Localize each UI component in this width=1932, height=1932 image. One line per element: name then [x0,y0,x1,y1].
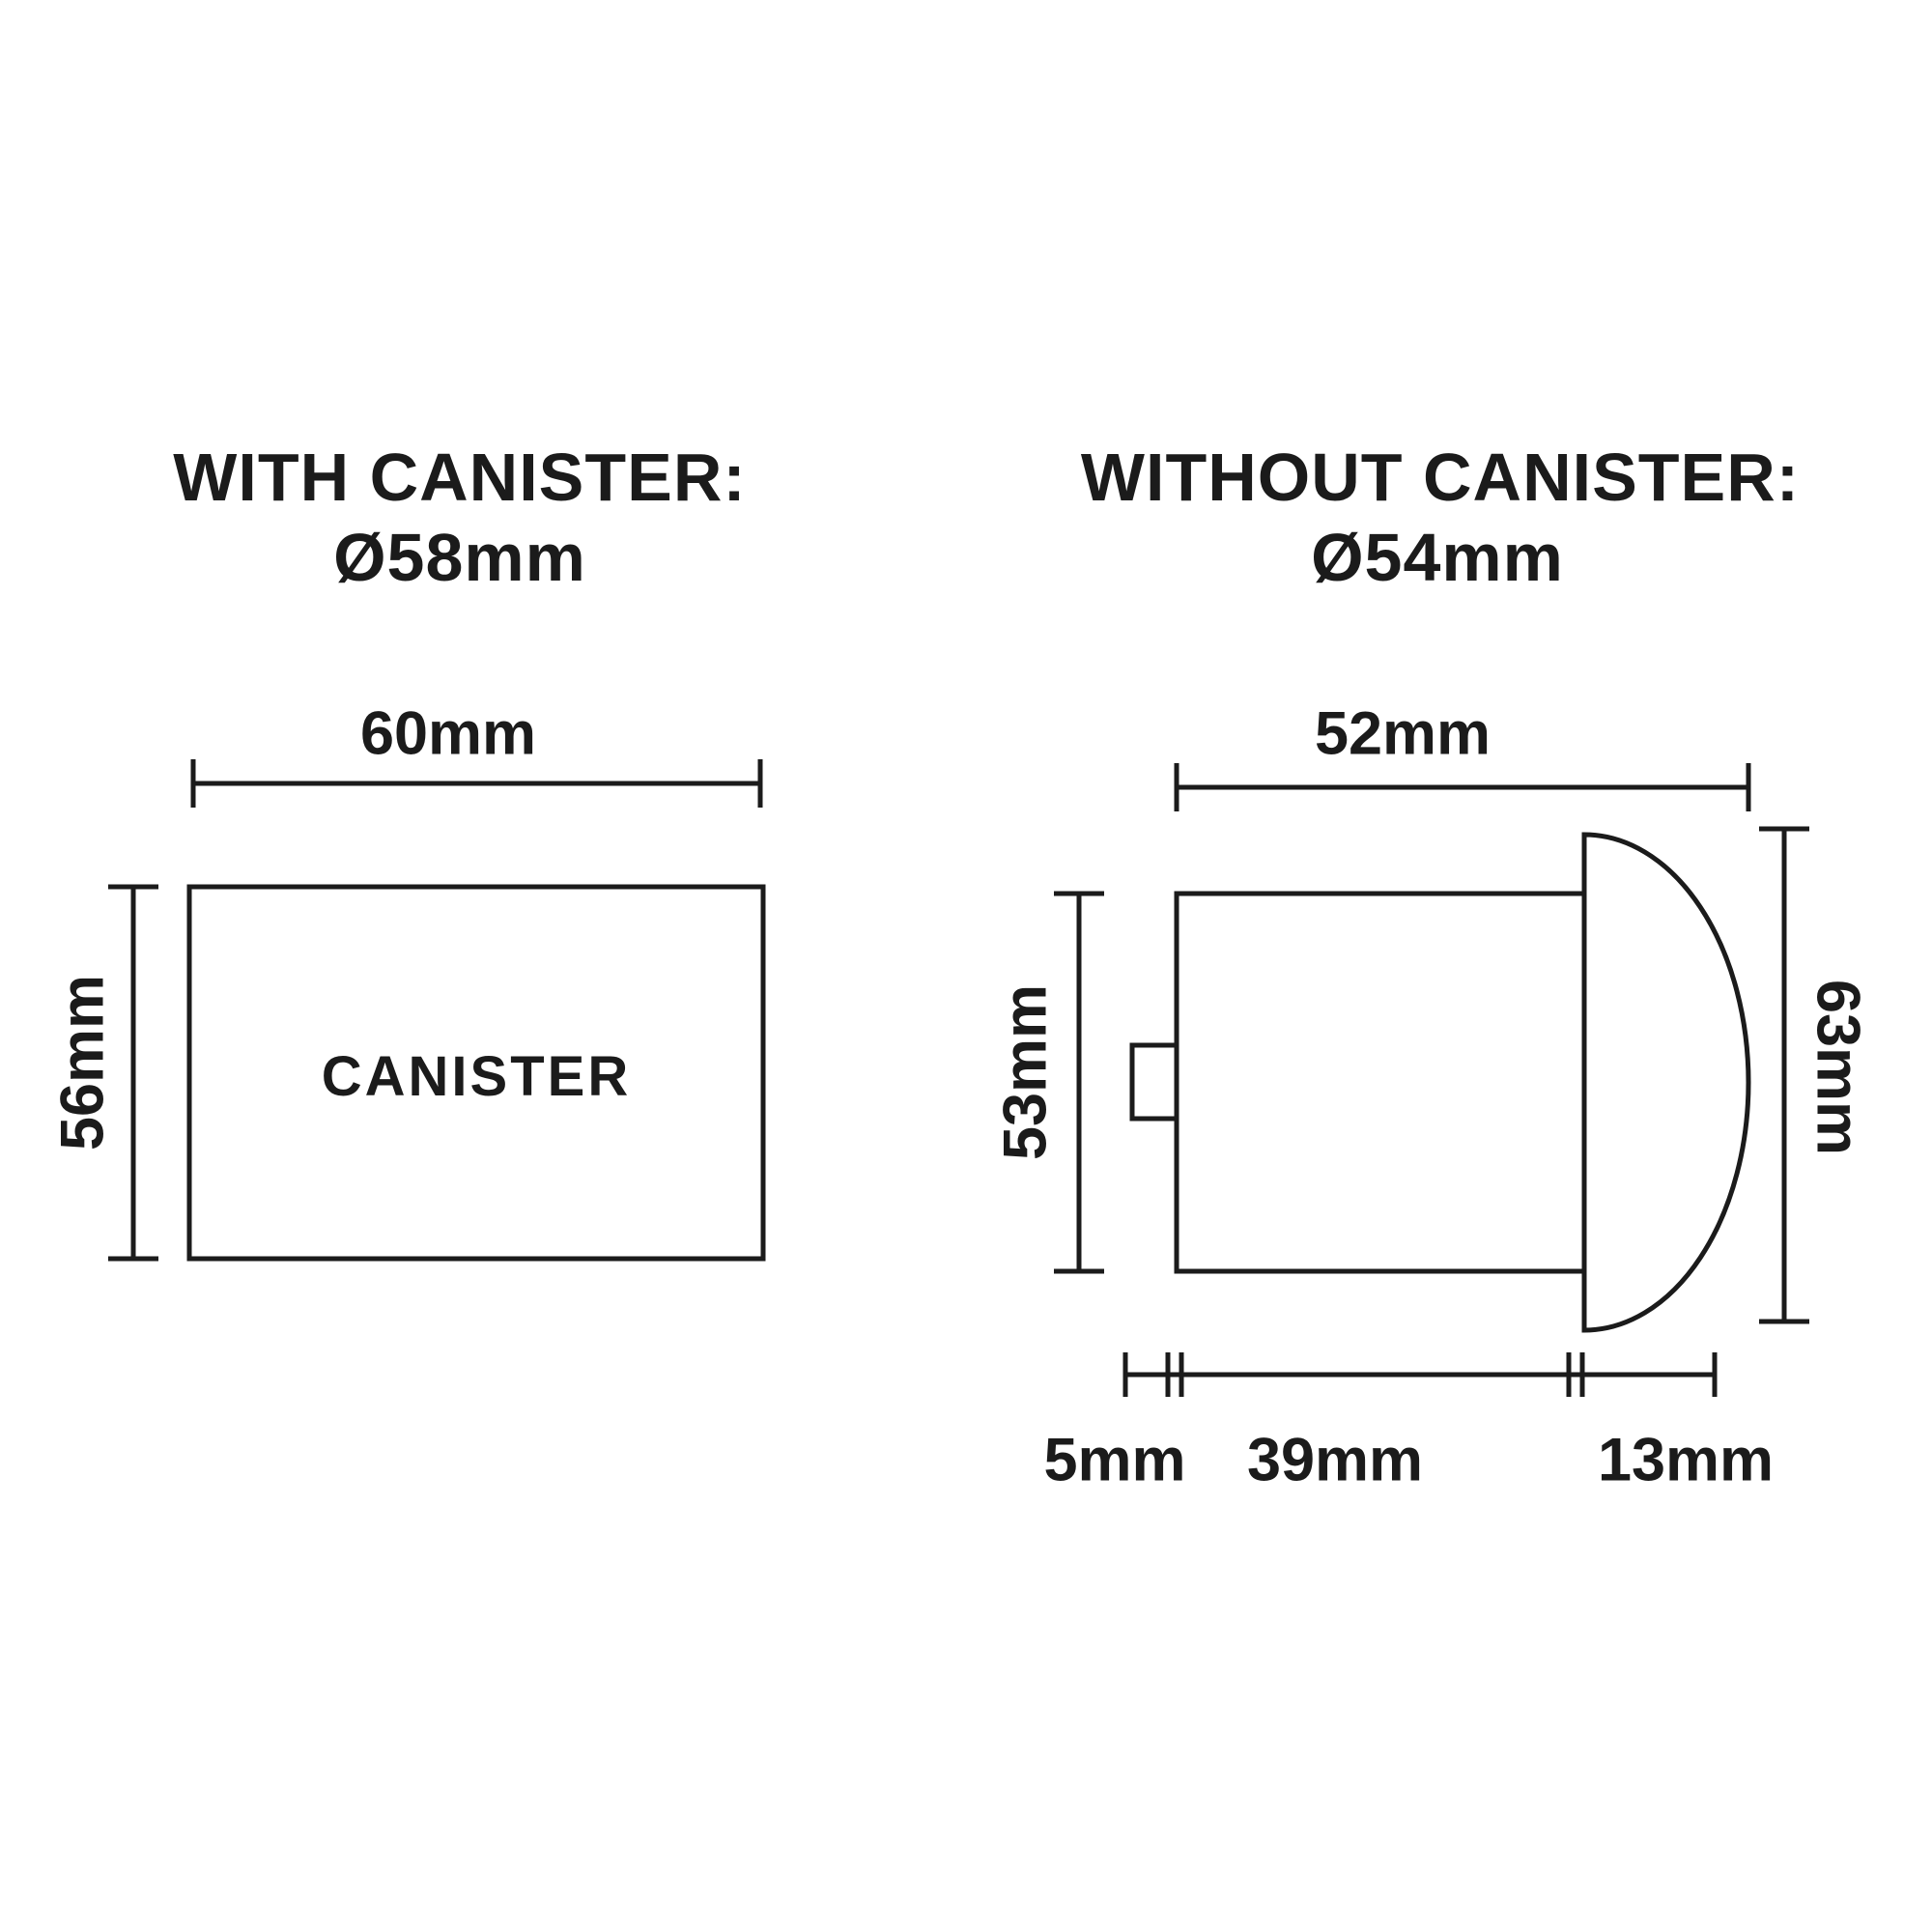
right-diameter-label: Ø54mm [1311,524,1564,591]
left-title: WITH CANISTER: [173,443,746,511]
right-title: WITHOUT CANISTER: [1081,443,1800,511]
body-rect [1177,894,1584,1271]
body-height-dim-line [1054,894,1104,1271]
body-height-label: 53mm [996,984,1057,1160]
right-width-label: 52mm [1315,704,1491,765]
left-diameter-label: Ø58mm [333,524,586,591]
dome-shape [1584,835,1748,1330]
overall-height-label: 63mm [1807,980,1868,1155]
nub-depth-label: 5mm [1043,1431,1185,1492]
dome-depth-label: 13mm [1598,1431,1774,1492]
left-width-label: 60mm [360,704,536,765]
nub-rect [1132,1045,1177,1119]
technical-drawing-canvas: WITH CANISTER: Ø58mm WITHOUT CANISTER: Ø… [0,0,1932,1932]
canister-body-label: CANISTER [322,1049,631,1105]
overall-height-dim-line [1759,829,1809,1321]
left-height-label: 56mm [53,975,114,1151]
dimension-linework [0,0,1932,1932]
bottom-depth-dim-line [1125,1352,1715,1397]
body-depth-label: 39mm [1247,1431,1423,1492]
right-width-dim-line [1177,763,1748,811]
